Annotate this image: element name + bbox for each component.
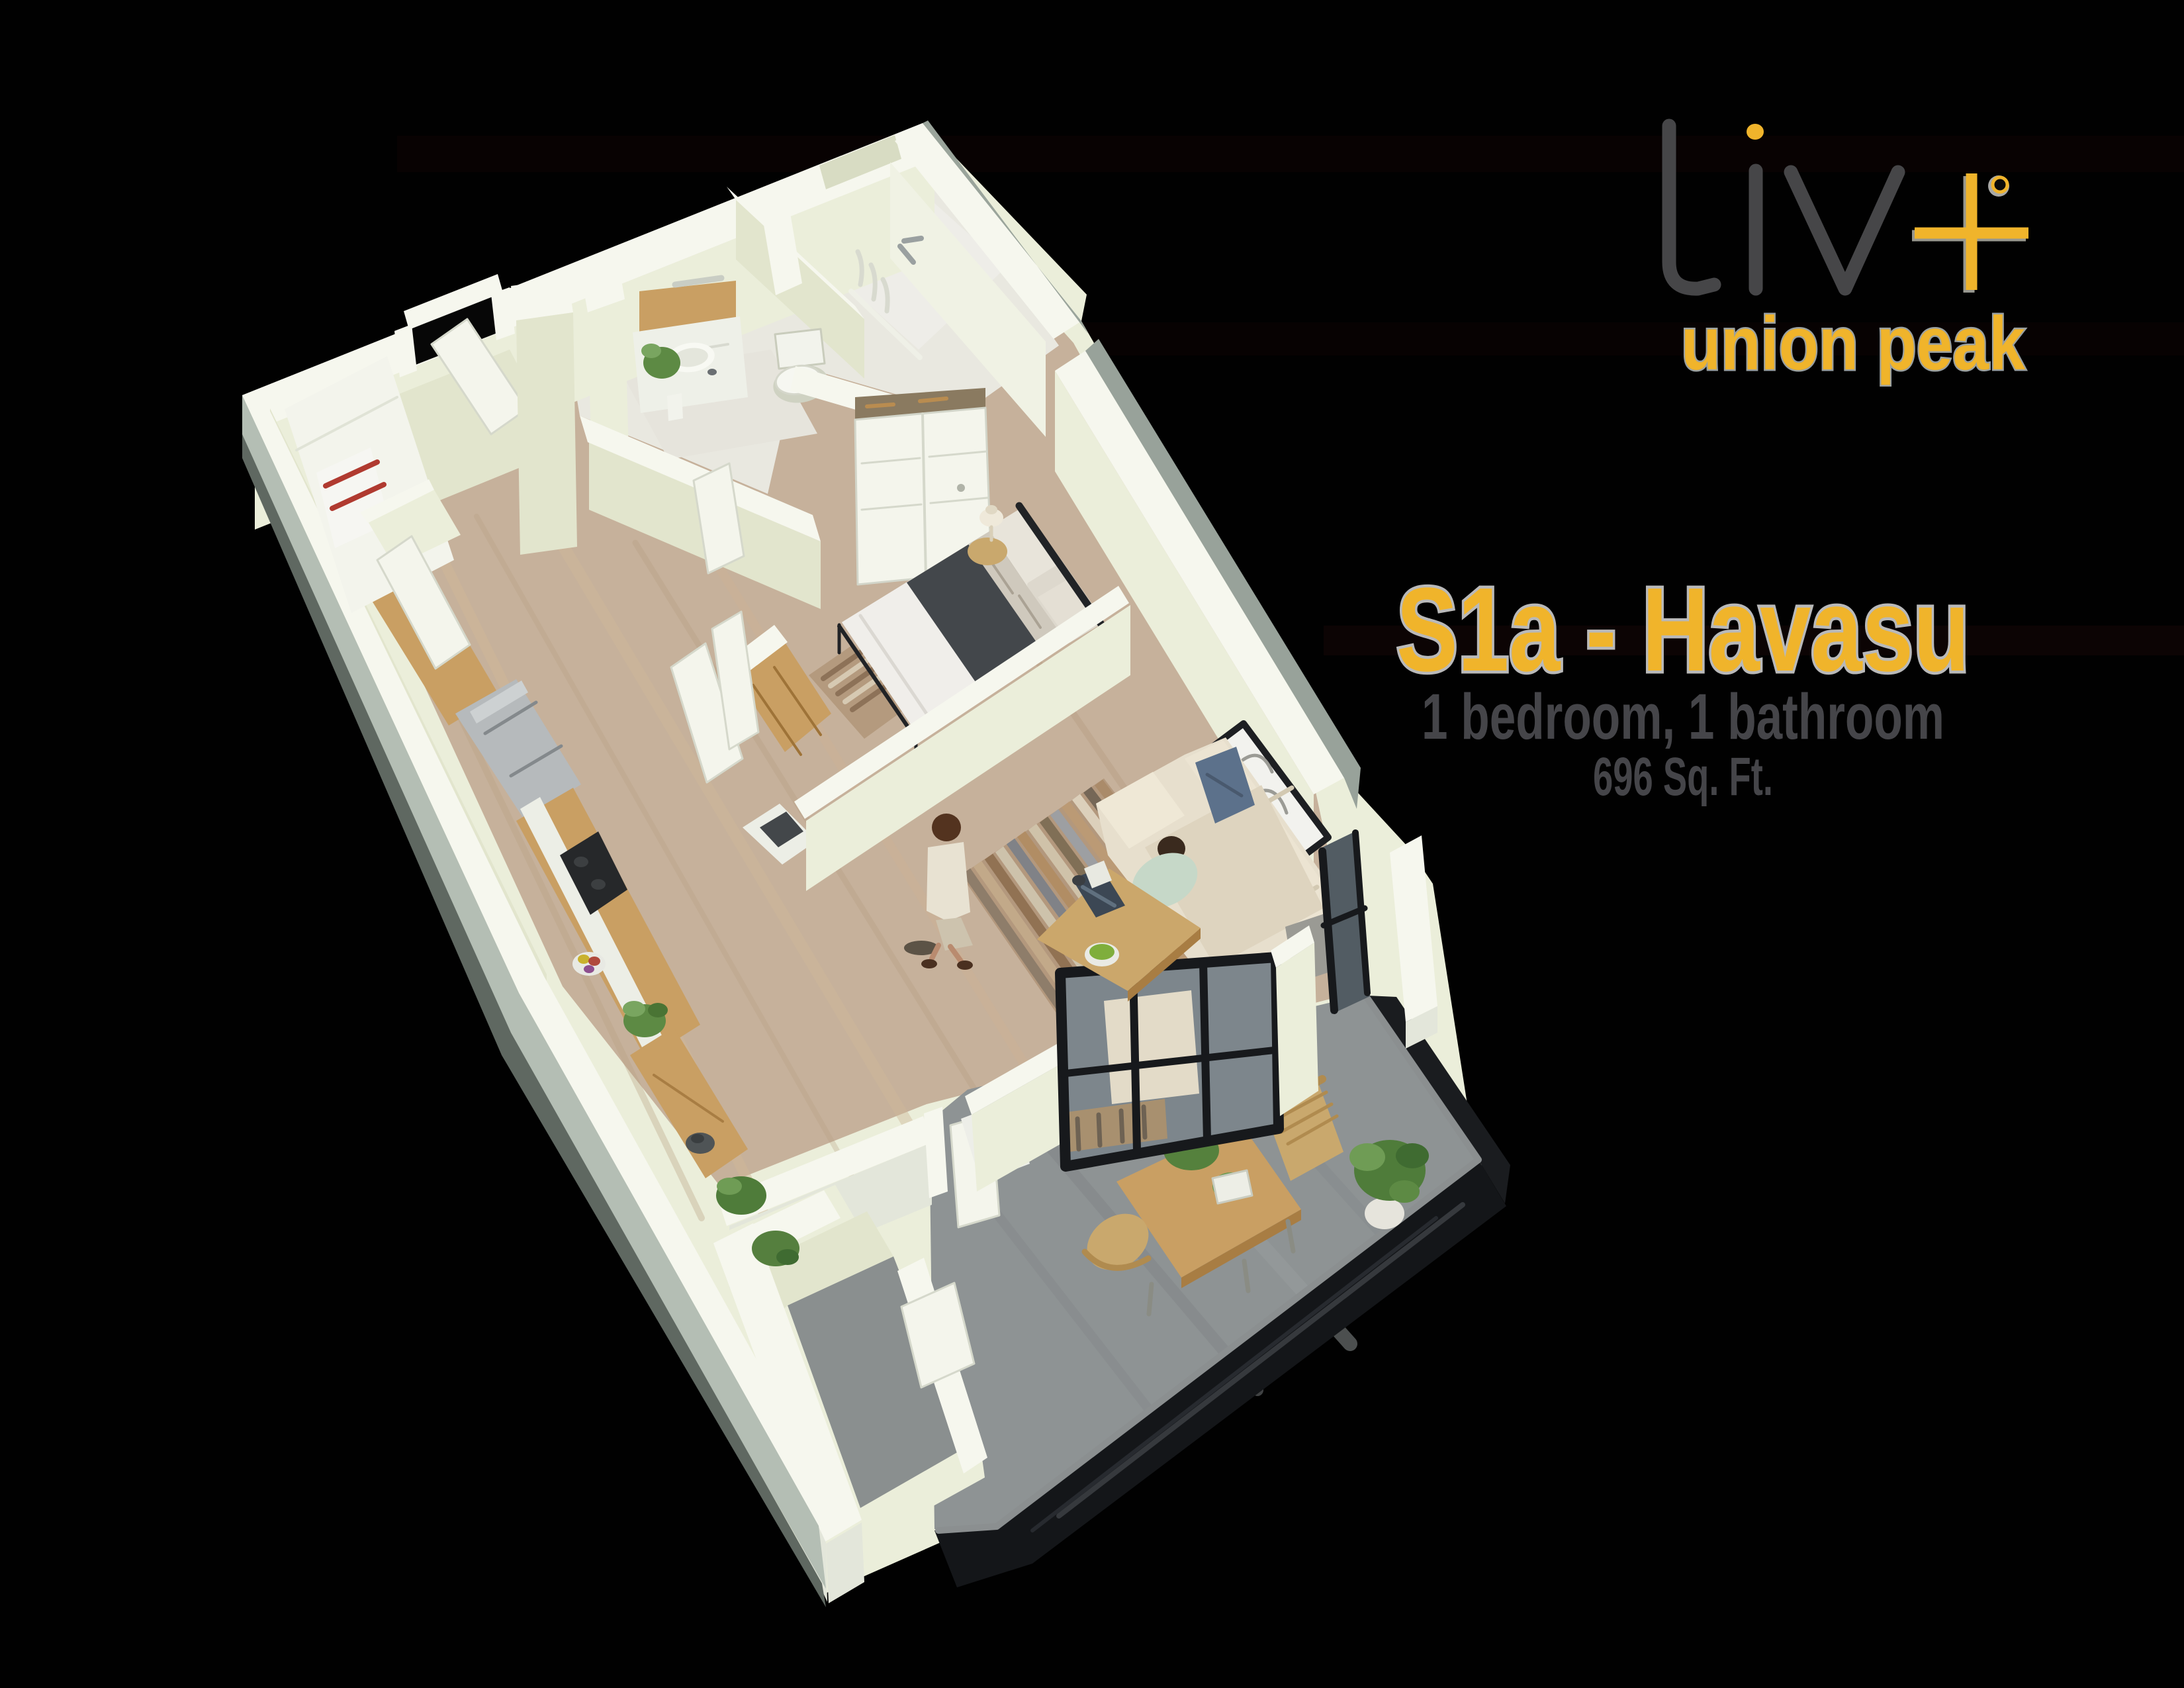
svg-text:1 bedroom, 1 bathroom: 1 bedroom, 1 bathroom bbox=[1422, 680, 1944, 753]
svg-text:S1a - Havasu: S1a - Havasu bbox=[1396, 563, 1970, 696]
svg-text:union peak: union peak bbox=[1681, 302, 2026, 386]
svg-text:696 Sq. Ft.: 696 Sq. Ft. bbox=[1593, 747, 1773, 807]
